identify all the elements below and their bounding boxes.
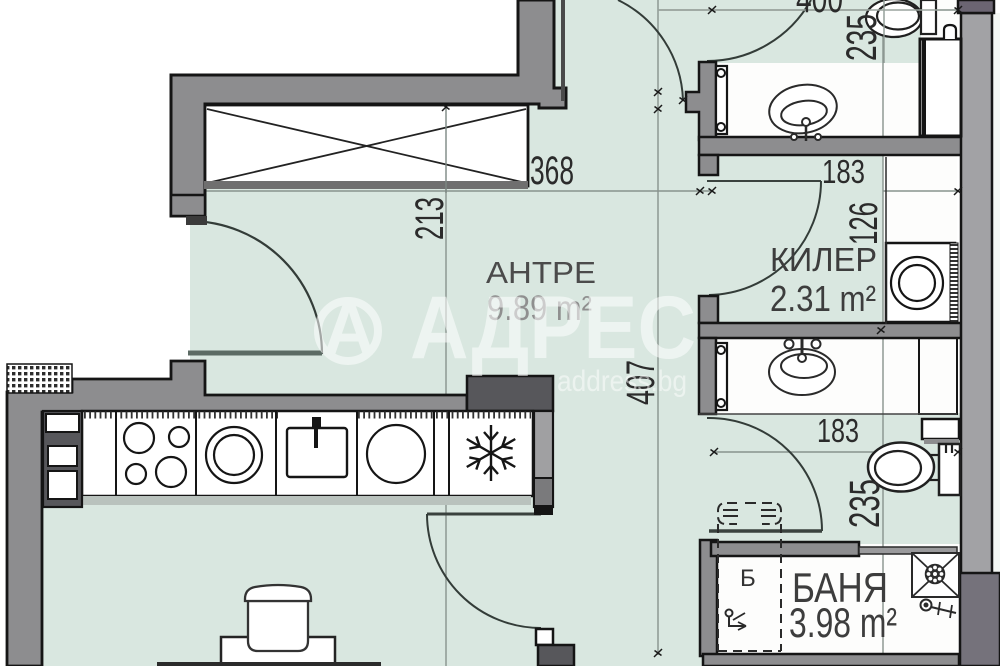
svg-text:126: 126 xyxy=(842,202,886,245)
svg-text:400: 400 xyxy=(796,0,843,21)
svg-text:2.31 m²: 2.31 m² xyxy=(770,278,876,319)
svg-text:235: 235 xyxy=(838,14,886,61)
svg-text:235: 235 xyxy=(841,479,889,528)
svg-text:КИЛЕР: КИЛЕР xyxy=(770,241,877,278)
svg-text:368: 368 xyxy=(530,149,574,193)
svg-text:АДРЕС: АДРЕС xyxy=(410,277,696,377)
svg-text:183: 183 xyxy=(817,412,859,449)
svg-text:Б: Б xyxy=(740,565,756,592)
svg-text:213: 213 xyxy=(408,197,452,240)
svg-text:А: А xyxy=(323,290,375,370)
svg-text:3.98 m²: 3.98 m² xyxy=(789,599,897,646)
svg-text:address.bg: address.bg xyxy=(557,365,687,398)
svg-text:183: 183 xyxy=(822,153,865,190)
